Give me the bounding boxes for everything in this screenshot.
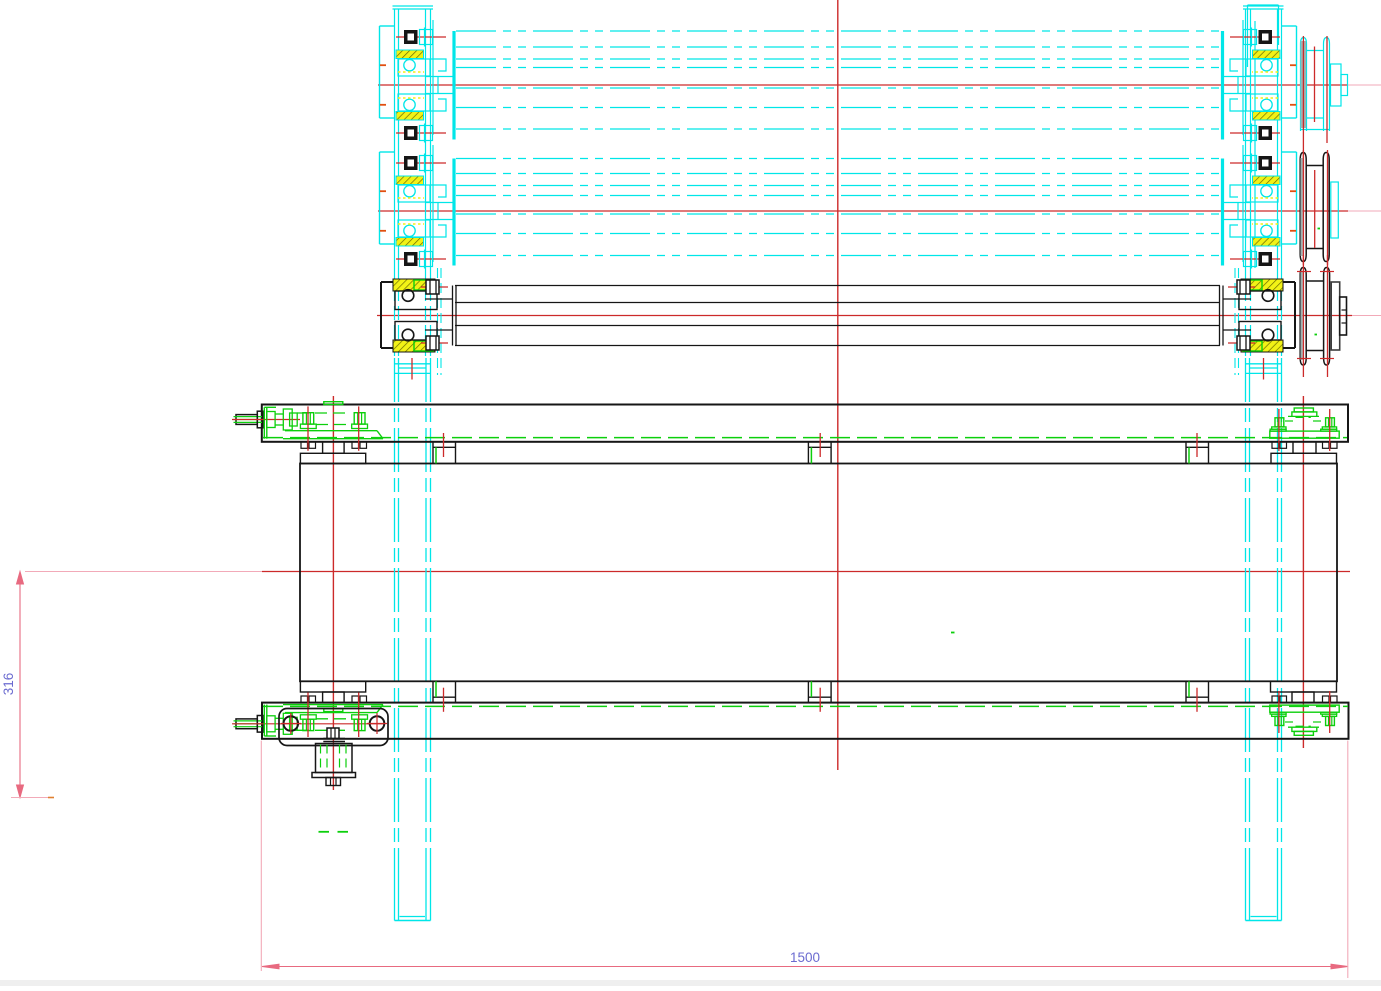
svg-text:316: 316 (1, 673, 16, 696)
svg-text:1500: 1500 (790, 950, 820, 965)
